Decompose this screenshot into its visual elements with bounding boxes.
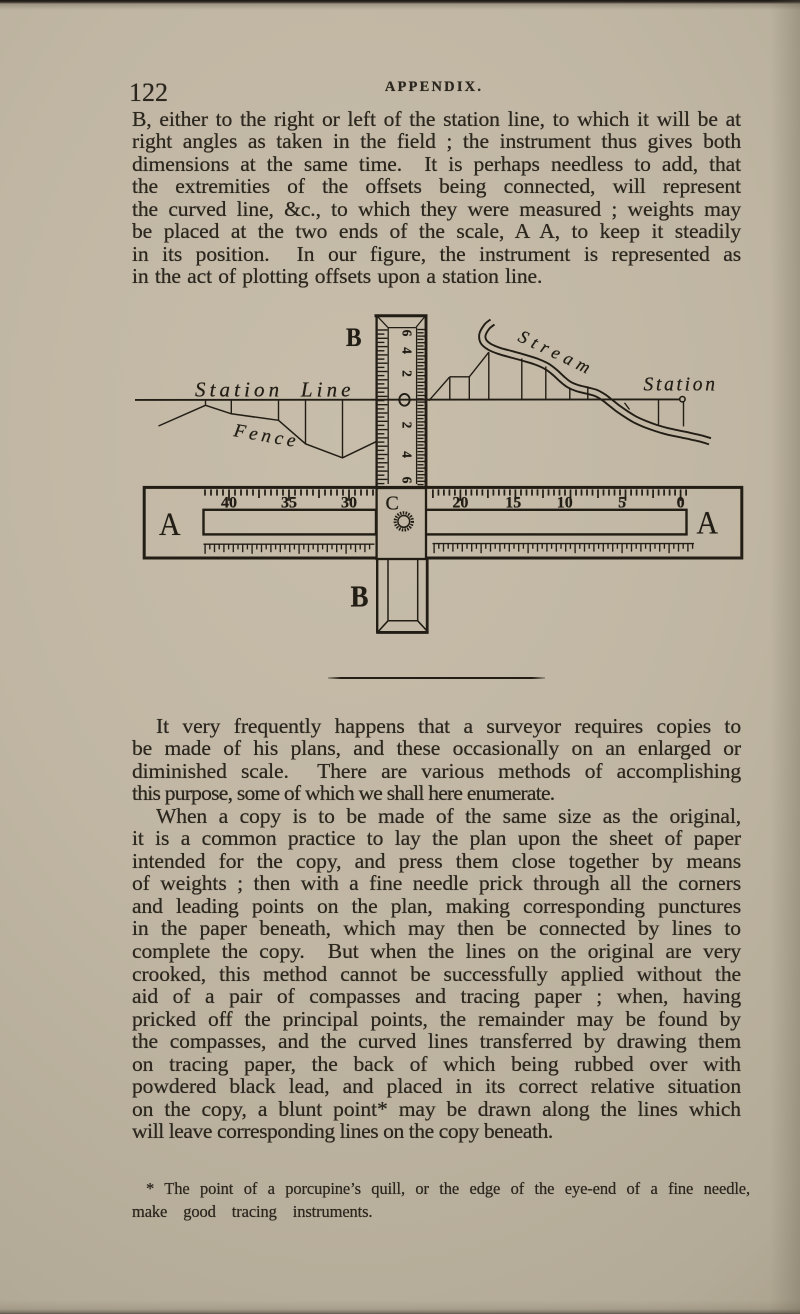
- svg-text:C: C: [386, 493, 399, 515]
- svg-text:Station Line: Station Line: [195, 378, 355, 402]
- svg-text:6: 6: [400, 477, 415, 484]
- svg-text:2: 2: [400, 422, 415, 429]
- svg-text:Stream: Stream: [515, 326, 598, 380]
- svg-text:B: B: [351, 579, 369, 614]
- svg-text:4: 4: [400, 451, 415, 458]
- svg-text:4: 4: [400, 347, 415, 354]
- svg-text:2: 2: [400, 370, 415, 377]
- svg-text:6: 6: [400, 330, 415, 337]
- svg-text:A: A: [159, 507, 181, 543]
- svg-text:Station: Station: [644, 375, 718, 396]
- svg-text:Fence: Fence: [231, 420, 301, 452]
- svg-text:B: B: [346, 323, 362, 352]
- svg-text:A: A: [697, 506, 719, 542]
